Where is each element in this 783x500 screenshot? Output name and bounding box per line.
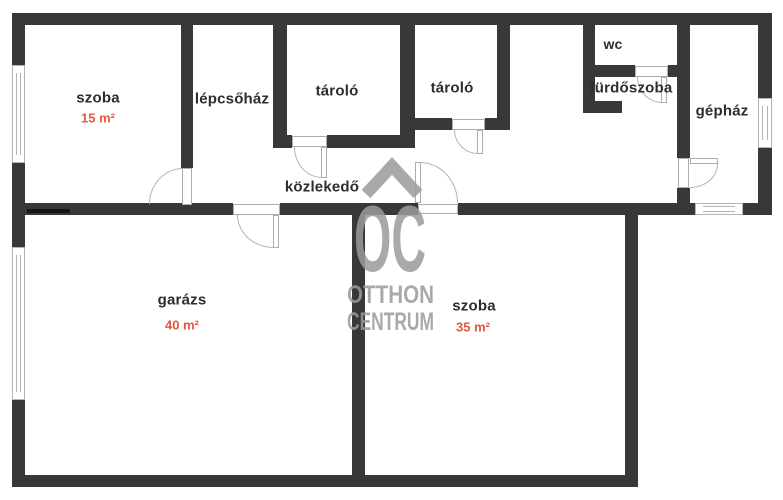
door-sill-tarolo1 [292,136,327,147]
wall-furdoszoba-stub [583,101,622,113]
window-gephaz-bottom [695,203,743,215]
door-arc-gephaz [690,164,718,188]
room-area-szoba15: 15 m² [81,111,115,126]
room-label-szoba15: szoba [76,90,120,107]
logo-word-centrum: CENTRUM [347,308,434,336]
room-label-wc: wc [603,36,622,52]
wall-left-lower-b [12,400,25,487]
room-label-gephaz: gépház [696,103,749,120]
door-leaf-szoba15 [182,168,192,205]
wall-wc-bottom-a [583,65,635,77]
wall-wc-bottom-b [668,65,677,77]
wall-left-upper-a [12,13,25,65]
wall-gephaz-left-b [677,188,690,215]
door-leaf-gephaz [690,158,718,164]
wall-top [12,13,772,25]
room-area-szoba35: 35 m² [456,320,490,335]
wall-bottom [12,475,638,487]
wall-gephaz-left-a [677,25,690,158]
door-arc-szoba15 [149,168,183,204]
logo-word-otthon: OTTHON [347,281,434,309]
wall-lepcsohaz-tarolo1 [273,25,287,148]
room-area-garazs: 40 m² [165,318,199,333]
room-label-tarolo1: tároló [316,83,359,100]
floor-plan: szoba 15 m² lépcsőház tároló tároló wc f… [0,0,783,500]
door-sill-gephaz [678,158,689,188]
door-leaf-tarolo2 [477,130,483,154]
door-arc-garazs [237,215,274,248]
door-leaf-tarolo1 [321,147,327,178]
wall-tarolo1-bottom-a [273,135,292,148]
door-leaf-garazs [273,215,279,248]
room-label-furdoszoba: fürdőszoba [590,80,673,97]
door-sill-wc [635,66,668,77]
door-sill-tarolo2 [452,119,485,130]
wall-mid-c [458,203,695,215]
wall-tarolo2-bottom-a [400,118,452,130]
wall-szoba15-lepcsohaz [181,25,193,168]
wall-left-lower-a [12,215,25,247]
door-arc-tarolo1 [294,147,322,178]
room-label-szoba35: szoba [452,298,496,315]
room-label-tarolo2: tároló [431,80,474,97]
logo-monogram: OC [354,186,426,291]
wall-right-lower [625,215,638,487]
room-label-kozlekedo: közlekedő [285,179,359,196]
room-label-garazs: garázs [158,292,207,309]
window-garazs-left [12,247,25,400]
door-arc-tarolo2 [454,130,478,154]
garage-wall-detail-line [27,209,70,213]
wall-right-upper-a [758,13,772,98]
door-sill-garazs [233,204,280,215]
room-label-lepcsohaz: lépcsőház [195,91,269,108]
wall-mid-d [743,203,772,215]
window-szoba15-left [12,65,25,163]
window-gephaz-right [758,98,772,148]
wall-tarolo2-right [497,25,510,130]
